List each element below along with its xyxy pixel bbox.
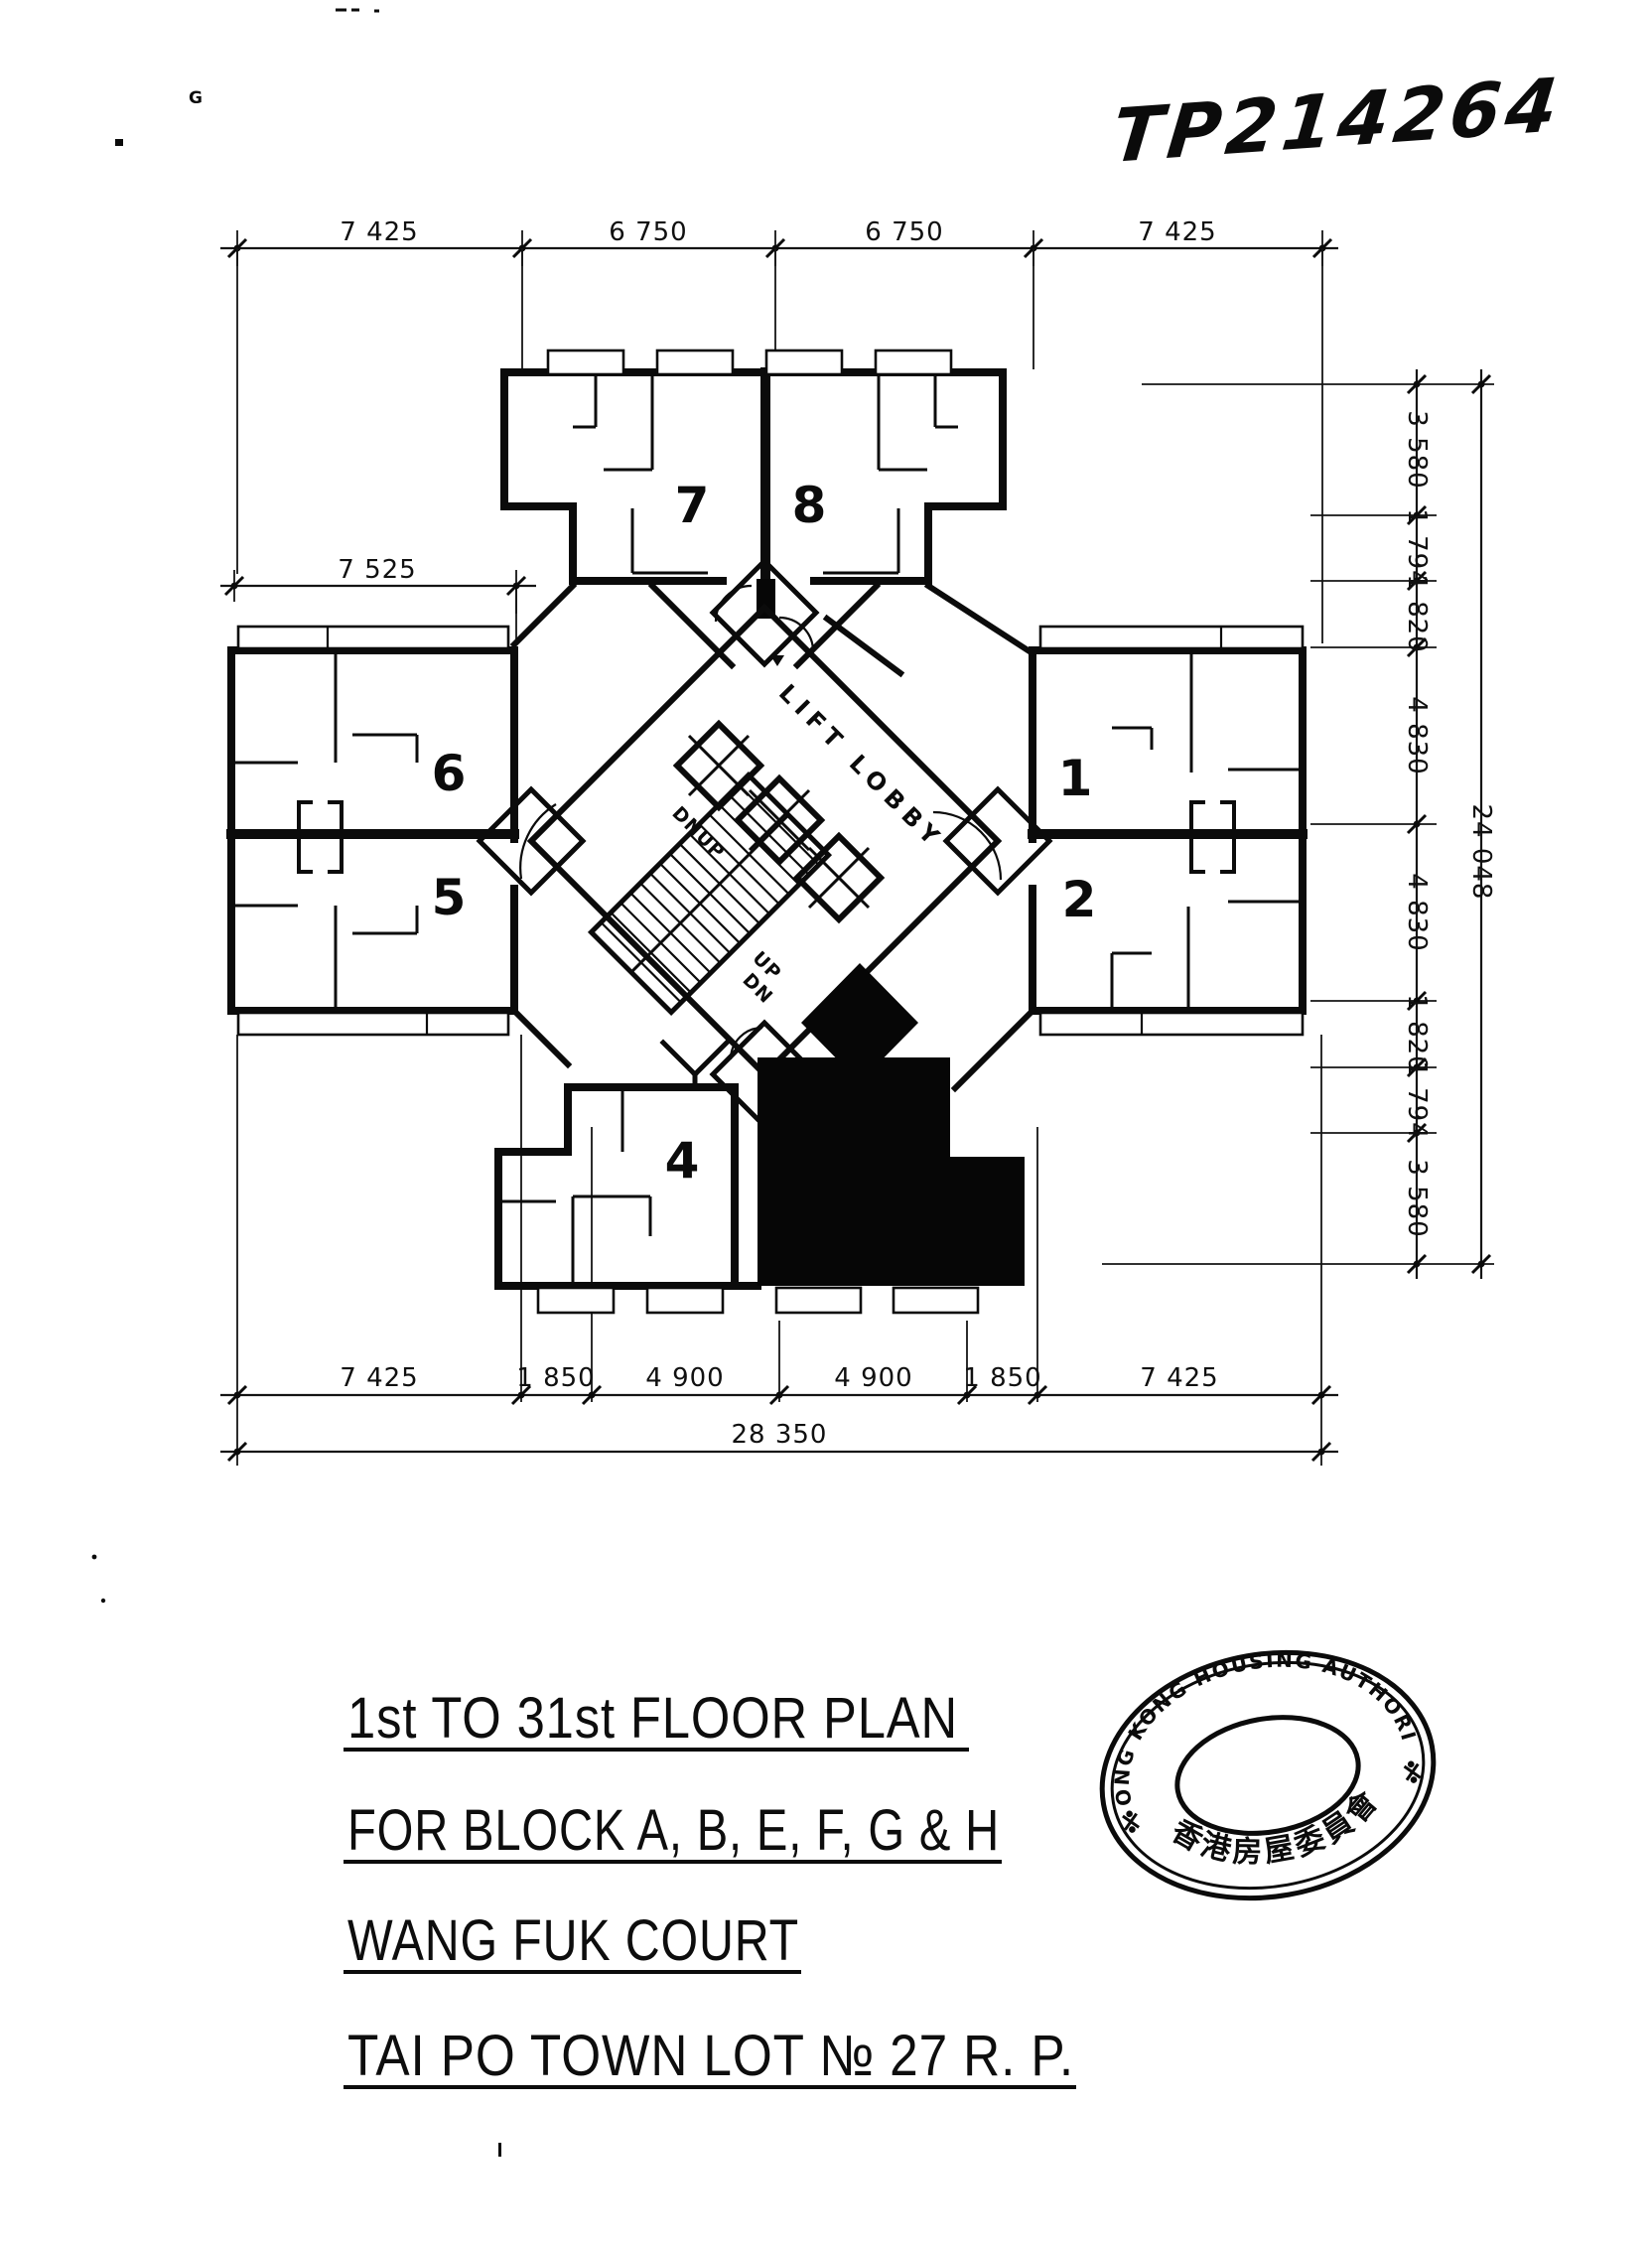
dim-bottom-overall: 28 350 xyxy=(732,1420,828,1450)
dim-right-8: 3 580 xyxy=(1402,1159,1432,1237)
dim-bottom-6: 7 425 xyxy=(1140,1363,1218,1393)
dim-left-wing-width: 7 525 xyxy=(338,555,416,585)
unit-8-number: 8 xyxy=(792,477,827,534)
corner-letter-artifact: G xyxy=(189,88,203,108)
unit-5-number: 5 xyxy=(432,869,467,926)
wing-left: 6 5 xyxy=(231,627,514,1035)
wing-top: 7 8 xyxy=(504,351,1003,619)
unit-2-number: 2 xyxy=(1062,871,1097,928)
lift-shaft-3 xyxy=(797,836,881,919)
reference-mark-icon xyxy=(1404,1761,1421,1783)
dim-top-4: 7 425 xyxy=(1138,217,1216,247)
authority-stamp: HONG KONG HOUSING AUTHORITY 香港房屋委員會 xyxy=(1081,1622,1452,1924)
dim-right-3: 1 820 xyxy=(1402,574,1432,652)
door-threshold-mark xyxy=(770,655,784,666)
floor-plan-drawing: 7 8 6 5 xyxy=(231,351,1303,1313)
title-line-1: 1st TO 31st FLOOR PLAN xyxy=(347,1686,958,1751)
dim-bottom-5: 1 850 xyxy=(963,1363,1041,1393)
dim-right-5: 4 830 xyxy=(1402,873,1432,951)
unit-6-number: 6 xyxy=(432,745,467,802)
stamp-arc-text: HONG KONG HOUSING AUTHORITY xyxy=(1090,1623,1424,1808)
floor-plan-sheet: G TP214264 7 42 xyxy=(0,0,1652,2247)
dim-top-1: 7 425 xyxy=(340,217,418,247)
wing-right: 1 2 xyxy=(1032,627,1303,1035)
title-line-2: FOR BLOCK A, B, E, F, G & H xyxy=(347,1798,1000,1863)
dim-bottom-1: 7 425 xyxy=(340,1363,418,1393)
dim-bottom-4: 4 900 xyxy=(834,1363,912,1393)
dim-top-2: 6 750 xyxy=(609,217,687,247)
dim-top-3: 6 750 xyxy=(865,217,943,247)
dim-right-1: 3 580 xyxy=(1402,410,1432,489)
dim-bottom-2: 1 850 xyxy=(516,1363,595,1393)
unit-3-highlight xyxy=(538,963,1025,1313)
title-block: 1st TO 31st FLOOR PLAN FOR BLOCK A, B, E… xyxy=(345,1686,1074,2088)
doc-ref-text: TP214264 xyxy=(1108,62,1567,180)
dim-right-4: 4 830 xyxy=(1402,696,1432,774)
title-line-3: WANG FUK COURT xyxy=(347,1908,799,1973)
svg-text:HONG KONG HOUSING AUTHORITY: HONG KONG HOUSING AUTHORITY xyxy=(1090,1623,1424,1808)
central-core: LIFT LOBBY DN UP UP DN xyxy=(480,561,1049,1126)
unit-7-number: 7 xyxy=(675,477,710,534)
unit-1-number: 1 xyxy=(1058,750,1093,807)
reference-mark-icon xyxy=(1122,1811,1139,1833)
dim-right-overall: 24 048 xyxy=(1466,804,1496,901)
title-line-4: TAI PO TOWN LOT № 27 R. P. xyxy=(347,2024,1074,2088)
dim-bottom-3: 4 900 xyxy=(645,1363,724,1393)
dim-right-7: 1 794 xyxy=(1402,1060,1432,1139)
handwritten-doc-ref: TP214264 xyxy=(1108,62,1567,180)
staircase xyxy=(591,774,828,1012)
unit-4-number: 4 xyxy=(665,1132,700,1190)
